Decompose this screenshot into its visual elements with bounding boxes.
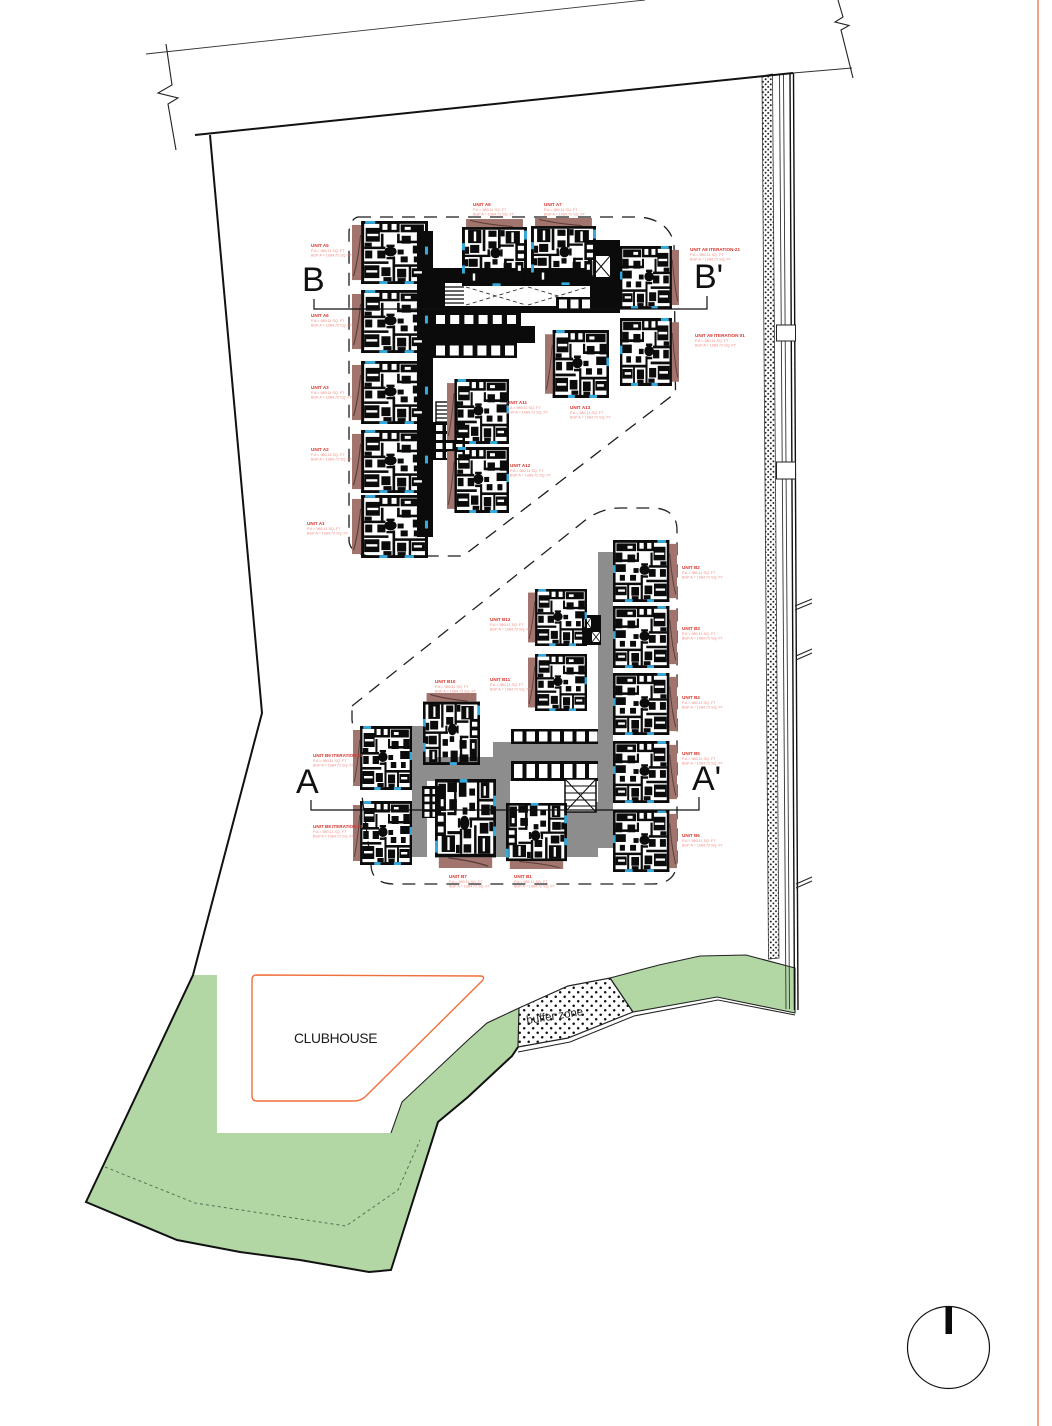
svg-text:BUP A = 1084.72 SQ. FT: BUP A = 1084.72 SQ. FT bbox=[313, 764, 355, 768]
svg-text:P.A = 980.11 SQ. FT: P.A = 980.11 SQ. FT bbox=[313, 830, 347, 834]
svg-text:BUP A = 1084.72 SQ. FT: BUP A = 1084.72 SQ. FT bbox=[507, 411, 549, 415]
svg-text:BUP A = 1084.72 SQ. FT: BUP A = 1084.72 SQ. FT bbox=[514, 885, 556, 889]
svg-text:A: A bbox=[296, 763, 319, 801]
svg-text:P.A = 980.11 SQ. FT: P.A = 980.11 SQ. FT bbox=[307, 527, 341, 531]
svg-text:UNIT A13: UNIT A13 bbox=[570, 405, 591, 410]
svg-text:UNIT A12: UNIT A12 bbox=[510, 463, 531, 468]
svg-text:P.A = 980.11 SQ. FT: P.A = 980.11 SQ. FT bbox=[682, 571, 716, 575]
svg-text:P.A = 980.11 SQ. FT: P.A = 980.11 SQ. FT bbox=[490, 683, 524, 687]
svg-text:P.A = 980.11 SQ. FT: P.A = 980.11 SQ. FT bbox=[490, 623, 524, 627]
svg-text:CLUBHOUSE: CLUBHOUSE bbox=[294, 1031, 377, 1046]
svg-text:BUP A = 1084.72 SQ. FT: BUP A = 1084.72 SQ. FT bbox=[510, 474, 552, 478]
svg-text:BUP A = 1084.72 SQ. FT: BUP A = 1084.72 SQ. FT bbox=[311, 396, 353, 400]
svg-text:BUP A = 1084.72 SQ. FT: BUP A = 1084.72 SQ. FT bbox=[682, 576, 724, 580]
svg-text:P.A = 980.11 SQ. FT: P.A = 980.11 SQ. FT bbox=[435, 685, 469, 689]
svg-text:P.A = 980.11 SQ. FT: P.A = 980.11 SQ. FT bbox=[570, 411, 604, 415]
svg-text:B: B bbox=[302, 261, 325, 299]
svg-text:BUP A = 1084.72 SQ. FT: BUP A = 1084.72 SQ. FT bbox=[570, 416, 612, 420]
svg-text:BUP A = 1084.72 SQ. FT: BUP A = 1084.72 SQ. FT bbox=[682, 706, 724, 710]
svg-text:BUP A = 1084.72 SQ. FT: BUP A = 1084.72 SQ. FT bbox=[544, 213, 586, 217]
svg-text:BUP A = 1084.72 SQ. FT: BUP A = 1084.72 SQ. FT bbox=[311, 324, 353, 328]
svg-text:B': B' bbox=[694, 258, 723, 296]
svg-text:P.A = 980.11 SQ. FT: P.A = 980.11 SQ. FT bbox=[510, 469, 544, 473]
svg-text:UNIT A9 ITERATION 01: UNIT A9 ITERATION 01 bbox=[695, 333, 745, 338]
svg-text:UNIT A1: UNIT A1 bbox=[307, 521, 325, 526]
svg-text:UNIT B6: UNIT B6 bbox=[682, 833, 700, 838]
svg-text:P.A = 980.11 SQ. FT: P.A = 980.11 SQ. FT bbox=[682, 839, 716, 843]
svg-text:UNIT B4: UNIT B4 bbox=[682, 695, 700, 700]
svg-text:P.A = 980.11 SQ. FT: P.A = 980.11 SQ. FT bbox=[311, 249, 345, 253]
svg-text:P.A = 980.11 SQ. FT: P.A = 980.11 SQ. FT bbox=[695, 339, 729, 343]
svg-text:BUP A = 1084.72 SQ. FT: BUP A = 1084.72 SQ. FT bbox=[311, 458, 353, 462]
svg-text:UNIT B9 ITERATION 01: UNIT B9 ITERATION 01 bbox=[313, 753, 363, 758]
svg-text:A': A' bbox=[692, 760, 721, 798]
svg-text:P.A = 980.11 SQ. FT: P.A = 980.11 SQ. FT bbox=[473, 208, 507, 212]
svg-text:UNIT B2: UNIT B2 bbox=[682, 565, 700, 570]
svg-text:UNIT B7: UNIT B7 bbox=[449, 874, 467, 879]
svg-text:UNIT B3: UNIT B3 bbox=[682, 626, 700, 631]
svg-text:UNIT A2: UNIT A2 bbox=[311, 447, 329, 452]
svg-text:BUP A = 1084.72 SQ. FT: BUP A = 1084.72 SQ. FT bbox=[490, 688, 532, 692]
svg-text:UNIT B8 ITERATION 01: UNIT B8 ITERATION 01 bbox=[313, 824, 363, 829]
svg-text:UNIT A6: UNIT A6 bbox=[473, 202, 491, 207]
svg-text:UNIT A5: UNIT A5 bbox=[311, 243, 329, 248]
svg-text:BUP A = 1084.72 SQ. FT: BUP A = 1084.72 SQ. FT bbox=[682, 637, 724, 641]
svg-text:P.A = 980.11 SQ. FT: P.A = 980.11 SQ. FT bbox=[690, 253, 724, 257]
svg-text:P.A = 980.11 SQ. FT: P.A = 980.11 SQ. FT bbox=[682, 701, 716, 705]
svg-text:P.A = 980.11 SQ. FT: P.A = 980.11 SQ. FT bbox=[682, 632, 716, 636]
svg-text:P.A = 980.11 SQ. FT: P.A = 980.11 SQ. FT bbox=[311, 453, 345, 457]
svg-text:UNIT B10: UNIT B10 bbox=[435, 679, 456, 684]
svg-text:P.A = 980.11 SQ. FT: P.A = 980.11 SQ. FT bbox=[311, 319, 345, 323]
svg-text:UNIT B11: UNIT B11 bbox=[490, 677, 511, 682]
svg-text:BUP A = 1084.72 SQ. FT: BUP A = 1084.72 SQ. FT bbox=[490, 628, 532, 632]
svg-text:UNIT B1: UNIT B1 bbox=[514, 874, 532, 879]
svg-text:P.A = 980.11 SQ. FT: P.A = 980.11 SQ. FT bbox=[544, 208, 578, 212]
svg-text:UNIT A11: UNIT A11 bbox=[507, 400, 527, 405]
svg-text:UNIT A7: UNIT A7 bbox=[544, 202, 562, 207]
svg-text:P.A = 980.11 SQ. FT: P.A = 980.11 SQ. FT bbox=[449, 880, 483, 884]
svg-text:P.A = 980.11 SQ. FT: P.A = 980.11 SQ. FT bbox=[507, 406, 541, 410]
svg-text:P.A = 980.11 SQ. FT: P.A = 980.11 SQ. FT bbox=[514, 880, 548, 884]
svg-text:UNIT A6: UNIT A6 bbox=[311, 313, 329, 318]
svg-text:UNIT A8 ITERATION-21: UNIT A8 ITERATION-21 bbox=[690, 247, 740, 252]
svg-text:BUP A = 1084.72 SQ. FT: BUP A = 1084.72 SQ. FT bbox=[313, 835, 355, 839]
svg-text:UNIT B5: UNIT B5 bbox=[682, 751, 700, 756]
svg-text:BUP A = 1084.72 SQ. FT: BUP A = 1084.72 SQ. FT bbox=[449, 885, 491, 889]
svg-text:BUP A = 1084.72 SQ. FT: BUP A = 1084.72 SQ. FT bbox=[435, 690, 477, 694]
svg-text:P.A = 980.11 SQ. FT: P.A = 980.11 SQ. FT bbox=[311, 391, 345, 395]
svg-text:BUP A = 1084.72 SQ. FT: BUP A = 1084.72 SQ. FT bbox=[682, 844, 724, 848]
svg-text:BUP A = 1084.72 SQ. FT: BUP A = 1084.72 SQ. FT bbox=[695, 344, 737, 348]
svg-text:BUP A = 1084.72 SQ. FT: BUP A = 1084.72 SQ. FT bbox=[473, 213, 515, 217]
svg-text:UNIT A3: UNIT A3 bbox=[311, 385, 329, 390]
svg-text:UNIT B12: UNIT B12 bbox=[490, 617, 511, 622]
svg-text:BUP A = 1084.72 SQ. FT: BUP A = 1084.72 SQ. FT bbox=[311, 254, 353, 258]
svg-text:BUP A = 1084.72 SQ. FT: BUP A = 1084.72 SQ. FT bbox=[307, 532, 349, 536]
